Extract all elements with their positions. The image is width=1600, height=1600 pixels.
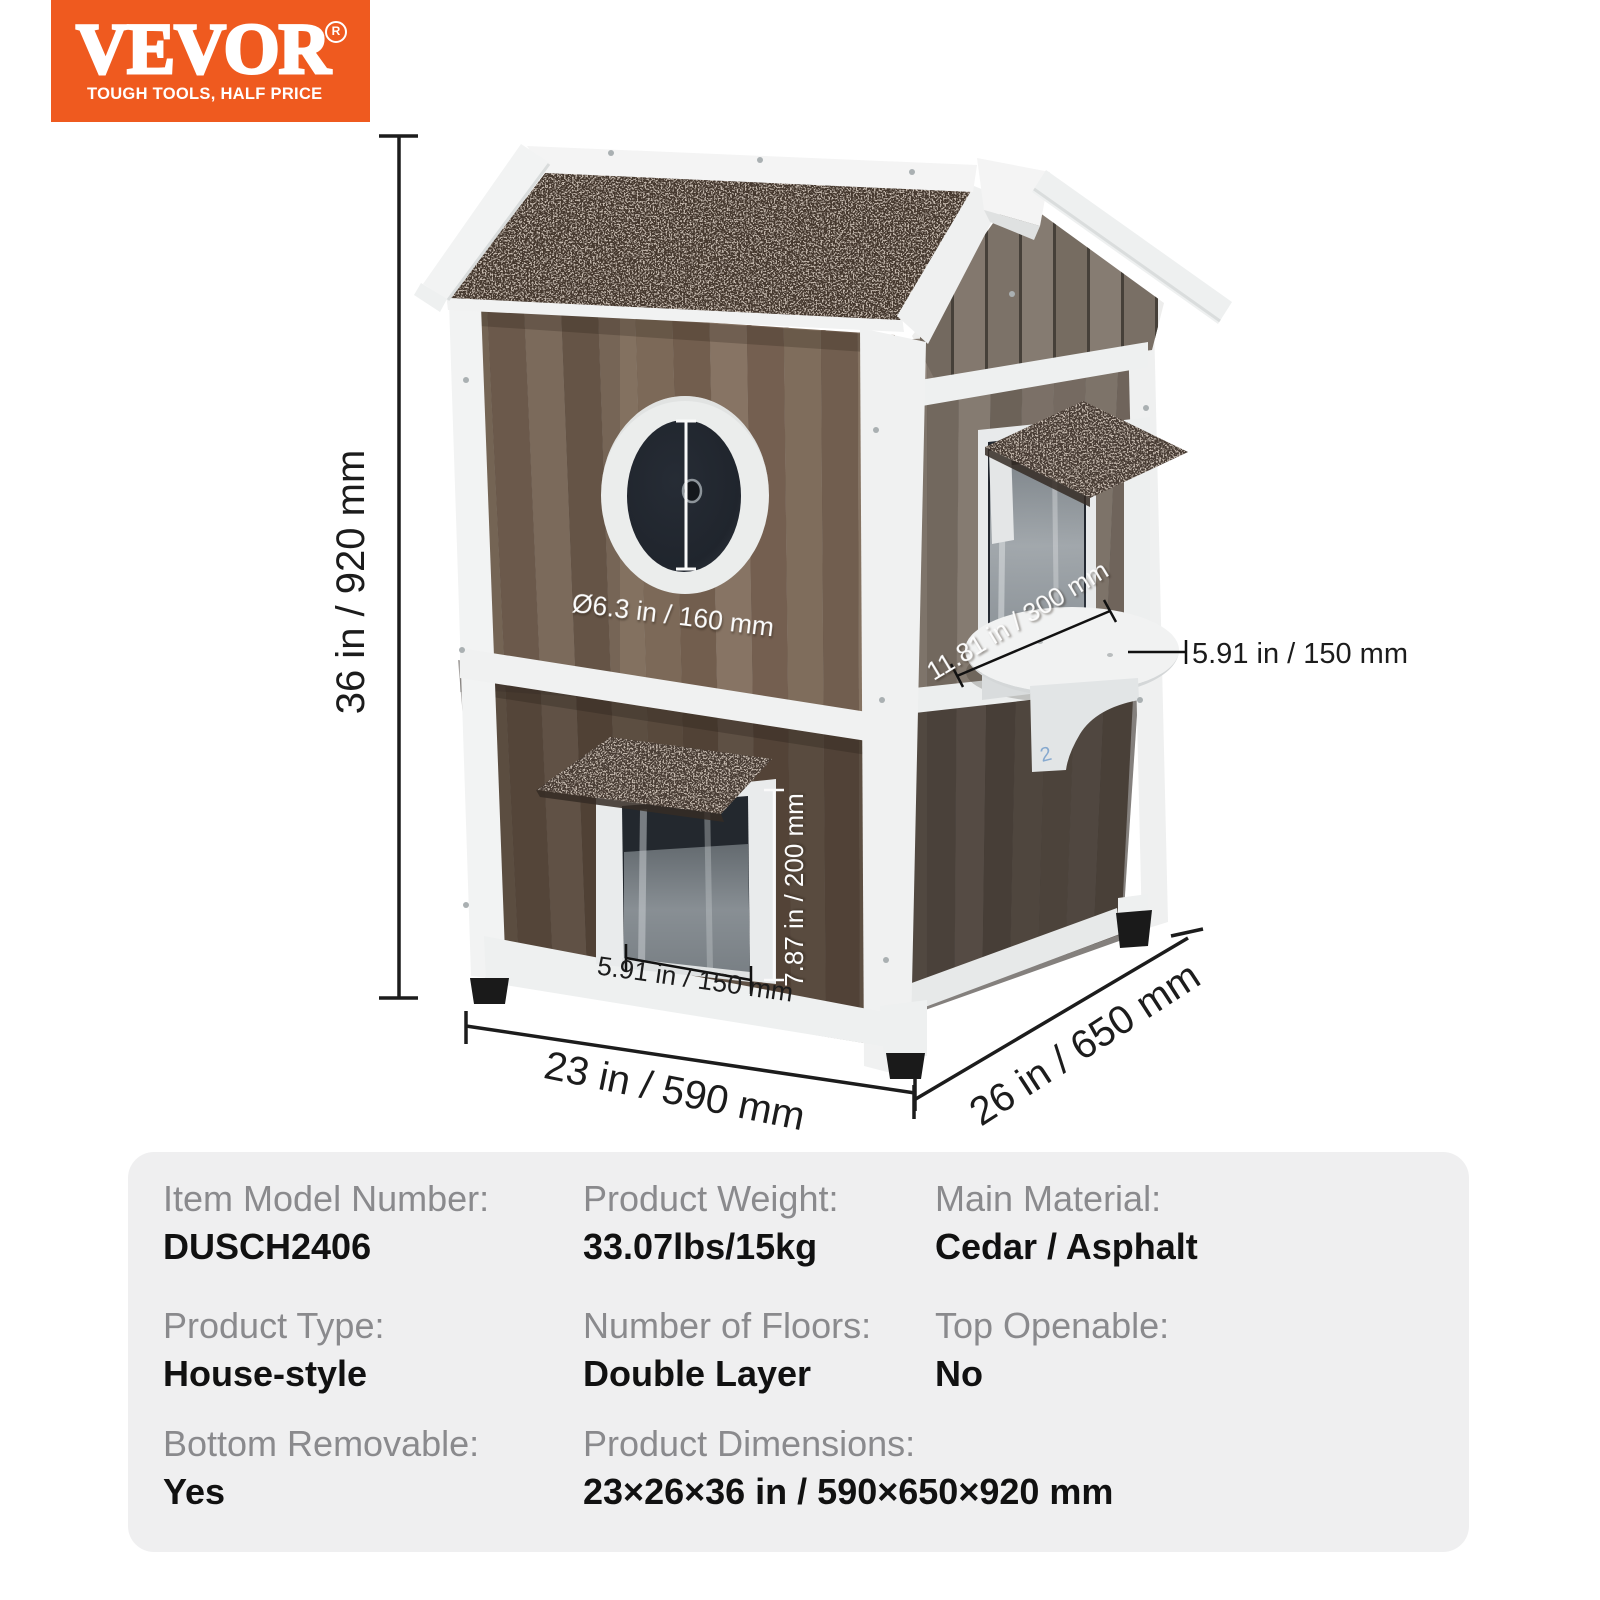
svg-text:7.87 in / 200 mm: 7.87 in / 200 mm xyxy=(779,793,809,987)
svg-text:36 in / 920 mm: 36 in / 920 mm xyxy=(329,450,373,715)
svg-text:5.91 in / 150 mm: 5.91 in / 150 mm xyxy=(1192,638,1408,670)
